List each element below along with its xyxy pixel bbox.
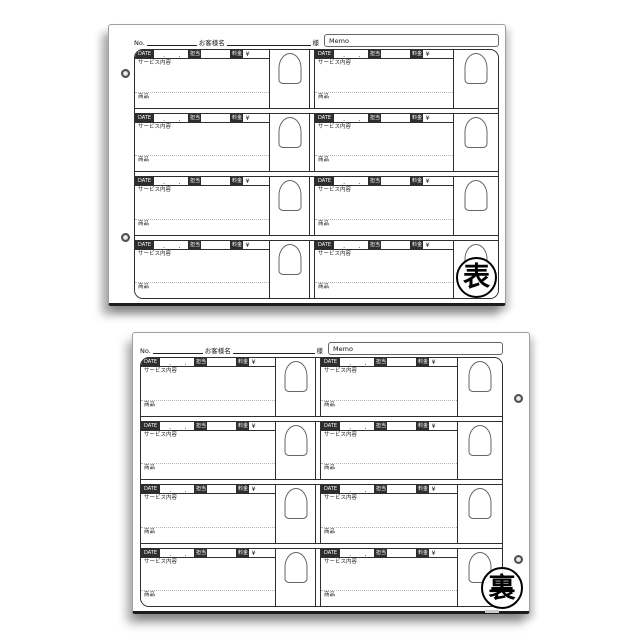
product-label: 商品 — [141, 401, 275, 409]
product-label: 商品 — [315, 220, 453, 228]
record-row: DATE . . 担当 料金 ¥ サービス内容 商品 DATE . . 担当 — [135, 50, 498, 109]
nail-shape-outline — [284, 552, 307, 583]
record-block: DATE . . 担当 料金 ¥ サービス内容 商品 — [141, 422, 276, 480]
memo-box: Memo — [328, 342, 503, 355]
product-area: 商品 — [321, 464, 457, 479]
date-separator-dot: . — [349, 551, 351, 557]
record-block: DATE . . 担当 料金 ¥ サービス内容 商品 — [314, 50, 454, 108]
service-content-area: サービス内容 — [141, 431, 275, 465]
front-side-stamp: 表 — [456, 257, 497, 298]
date-label: DATE — [141, 549, 160, 557]
nail-shape-outline — [278, 180, 301, 211]
date-separator-dot: . — [358, 116, 360, 122]
customer-name-line — [227, 45, 311, 46]
record-block: DATE . . 担当 料金 ¥ サービス内容 商品 — [135, 241, 270, 299]
staff-label: 担当 — [368, 114, 381, 122]
date-separator-dot: . — [184, 551, 186, 557]
service-content-area: サービス内容 — [135, 250, 269, 284]
service-content-area: サービス内容 — [321, 494, 457, 528]
date-separator-dot: . — [364, 424, 366, 430]
fee-label: 料金 — [410, 114, 423, 122]
nail-shape-outline — [469, 425, 492, 456]
date-label: DATE — [321, 485, 340, 493]
record-block: DATE . . 担当 料金 ¥ サービス内容 商品 — [135, 50, 270, 108]
nail-photo-cell — [276, 422, 316, 480]
date-label: DATE — [315, 177, 334, 185]
yen-symbol: ¥ — [245, 114, 249, 122]
service-content-label: サービス内容 — [135, 123, 269, 131]
service-content-label: サービス内容 — [141, 558, 275, 566]
product-label: 商品 — [315, 156, 453, 164]
date-separator-dot: . — [358, 52, 360, 58]
staff-label: 担当 — [194, 358, 207, 366]
memo-box: Memo — [324, 34, 499, 47]
memo-label: Memo — [329, 37, 349, 45]
yen-symbol: ¥ — [431, 422, 435, 430]
staff-label: 担当 — [374, 485, 387, 493]
service-content-label: サービス内容 — [315, 250, 453, 258]
service-content-label: サービス内容 — [135, 186, 269, 194]
product-area: 商品 — [141, 464, 275, 479]
product-label: 商品 — [315, 283, 453, 291]
service-content-area: サービス内容 — [141, 494, 275, 528]
fee-label: 料金 — [236, 485, 249, 493]
staff-label: 担当 — [188, 114, 201, 122]
staff-label: 担当 — [368, 50, 381, 58]
date-separator-dot: . — [163, 116, 165, 122]
nail-photo-cell — [270, 50, 310, 108]
record-block-header: DATE . . 担当 料金 ¥ — [135, 114, 269, 123]
product-label: 商品 — [135, 220, 269, 228]
record-block-header: DATE . . 担当 料金 ¥ — [141, 358, 275, 367]
fee-label: 料金 — [230, 114, 243, 122]
date-separator-dot: . — [184, 487, 186, 493]
yen-symbol: ¥ — [251, 358, 255, 366]
record-block-header: DATE . . 担当 料金 ¥ — [321, 358, 457, 367]
date-separator-dot: . — [178, 52, 180, 58]
product-area: 商品 — [315, 283, 453, 298]
record-block: DATE . . 担当 料金 ¥ サービス内容 商品 — [314, 114, 454, 172]
date-separator-dot: . — [184, 360, 186, 366]
yen-symbol: ¥ — [251, 422, 255, 430]
product-label: 商品 — [321, 464, 457, 472]
product-label: 商品 — [321, 528, 457, 536]
form-header: No. お客様名 様 Memo — [140, 339, 503, 355]
staff-label: 担当 — [194, 549, 207, 557]
product-area: 商品 — [135, 93, 269, 108]
yen-symbol: ¥ — [431, 485, 435, 493]
record-block-header: DATE . . 担当 料金 ¥ — [135, 50, 269, 59]
service-content-area: サービス内容 — [321, 558, 457, 592]
fee-label: 料金 — [410, 241, 423, 249]
date-label: DATE — [315, 241, 334, 249]
nail-photo-cell — [458, 422, 502, 480]
record-block-header: DATE . . 担当 料金 ¥ — [315, 241, 453, 250]
record-row: DATE . . 担当 料金 ¥ サービス内容 商品 DATE . . 担当 — [135, 176, 498, 236]
date-separator-dot: . — [343, 243, 345, 249]
fee-label: 料金 — [416, 358, 429, 366]
product-label: 商品 — [141, 464, 275, 472]
date-label: DATE — [315, 114, 334, 122]
yen-symbol: ¥ — [431, 549, 435, 557]
print-code-mark — [485, 610, 499, 613]
fee-label: 料金 — [416, 485, 429, 493]
service-content-label: サービス内容 — [321, 494, 457, 502]
record-block: DATE . . 担当 料金 ¥ サービス内容 商品 — [141, 358, 276, 416]
service-content-label: サービス内容 — [321, 431, 457, 439]
date-label: DATE — [141, 358, 160, 366]
nail-photo-cell — [276, 358, 316, 416]
sheet-back: No. お客様名 様 Memo DATE . . 担当 料金 ¥ サービス内容 — [132, 332, 530, 614]
yen-symbol: ¥ — [251, 549, 255, 557]
date-separator-dot: . — [358, 179, 360, 185]
yen-symbol: ¥ — [431, 358, 435, 366]
nail-photo-cell — [270, 241, 310, 299]
nail-photo-cell — [454, 50, 498, 108]
customer-name-line — [233, 353, 315, 354]
staff-label: 担当 — [194, 485, 207, 493]
date-separator-dot: . — [169, 487, 171, 493]
record-block-header: DATE . . 担当 料金 ¥ — [315, 177, 453, 186]
date-separator-dot: . — [349, 360, 351, 366]
service-content-label: サービス内容 — [315, 123, 453, 131]
nail-shape-outline — [278, 53, 301, 84]
product-photo: No. お客様名 様 Memo DATE . . 担当 料金 ¥ サービス内容 — [0, 0, 640, 640]
service-content-label: サービス内容 — [135, 59, 269, 67]
fee-label: 料金 — [230, 50, 243, 58]
record-block-header: DATE . . 担当 料金 ¥ — [141, 549, 275, 558]
no-field-line — [153, 353, 203, 354]
record-block-header: DATE . . 担当 料金 ¥ — [135, 241, 269, 250]
date-separator-dot: . — [364, 487, 366, 493]
record-row: DATE . . 担当 料金 ¥ サービス内容 商品 DATE . . 担当 — [141, 421, 502, 481]
record-block-header: DATE . . 担当 料金 ¥ — [321, 549, 457, 558]
product-area: 商品 — [321, 401, 457, 416]
date-separator-dot: . — [343, 179, 345, 185]
date-separator-dot: . — [178, 179, 180, 185]
product-area: 商品 — [321, 591, 457, 606]
product-label: 商品 — [141, 591, 275, 599]
record-block: DATE . . 担当 料金 ¥ サービス内容 商品 — [141, 485, 276, 543]
date-separator-dot: . — [364, 551, 366, 557]
staff-label: 担当 — [188, 50, 201, 58]
fee-label: 料金 — [230, 241, 243, 249]
memo-label: Memo — [333, 345, 353, 353]
honorific-label: 様 — [317, 347, 324, 355]
date-label: DATE — [135, 50, 154, 58]
nail-photo-cell — [458, 485, 502, 543]
record-row: DATE . . 担当 料金 ¥ サービス内容 商品 DATE . . 担当 — [141, 548, 502, 607]
front-stamp-kanji: 表 — [463, 264, 490, 291]
service-content-area: サービス内容 — [315, 123, 453, 157]
punch-hole — [121, 69, 130, 78]
service-content-label: サービス内容 — [321, 367, 457, 375]
record-block-header: DATE . . 担当 料金 ¥ — [135, 177, 269, 186]
record-row: DATE . . 担当 料金 ¥ サービス内容 商品 DATE . . 担当 — [141, 358, 502, 417]
service-content-label: サービス内容 — [315, 186, 453, 194]
record-block-header: DATE . . 担当 料金 ¥ — [141, 485, 275, 494]
record-block-header: DATE . . 担当 料金 ¥ — [321, 485, 457, 494]
date-separator-dot: . — [169, 360, 171, 366]
nail-shape-outline — [284, 361, 307, 392]
nail-photo-cell — [270, 114, 310, 172]
fee-label: 料金 — [230, 177, 243, 185]
record-block-header: DATE . . 担当 料金 ¥ — [315, 50, 453, 59]
record-block-header: DATE . . 担当 料金 ¥ — [141, 422, 275, 431]
product-area: 商品 — [141, 528, 275, 543]
fee-label: 料金 — [236, 422, 249, 430]
service-content-label: サービス内容 — [141, 431, 275, 439]
date-label: DATE — [141, 422, 160, 430]
record-row: DATE . . 担当 料金 ¥ サービス内容 商品 DATE . . 担当 — [141, 484, 502, 544]
record-block: DATE . . 担当 料金 ¥ サービス内容 商品 — [320, 358, 458, 416]
date-label: DATE — [135, 241, 154, 249]
date-separator-dot: . — [343, 116, 345, 122]
product-label: 商品 — [315, 93, 453, 101]
honorific-label: 様 — [313, 39, 320, 47]
product-label: 商品 — [135, 283, 269, 291]
staff-label: 担当 — [194, 422, 207, 430]
yen-symbol: ¥ — [425, 241, 429, 249]
product-area: 商品 — [315, 220, 453, 235]
staff-label: 担当 — [188, 177, 201, 185]
product-area: 商品 — [141, 591, 275, 606]
record-block: DATE . . 担当 料金 ¥ サービス内容 商品 — [141, 549, 276, 607]
service-content-area: サービス内容 — [321, 431, 457, 465]
record-row: DATE . . 担当 料金 ¥ サービス内容 商品 DATE . . 担当 — [135, 240, 498, 299]
product-label: 商品 — [135, 93, 269, 101]
record-block: DATE . . 担当 料金 ¥ サービス内容 商品 — [320, 422, 458, 480]
fee-label: 料金 — [236, 549, 249, 557]
record-block-header: DATE . . 担当 料金 ¥ — [321, 422, 457, 431]
sheet-front: No. お客様名 様 Memo DATE . . 担当 料金 ¥ サービス内容 — [108, 24, 506, 306]
back-side-stamp: 裏 — [481, 567, 523, 609]
date-label: DATE — [135, 114, 154, 122]
service-content-area: サービス内容 — [141, 558, 275, 592]
nail-shape-outline — [465, 180, 488, 211]
date-separator-dot: . — [364, 360, 366, 366]
product-label: 商品 — [321, 591, 457, 599]
date-separator-dot: . — [163, 179, 165, 185]
date-label: DATE — [315, 50, 334, 58]
record-block: DATE . . 担当 料金 ¥ サービス内容 商品 — [135, 114, 270, 172]
date-separator-dot: . — [184, 424, 186, 430]
product-area: 商品 — [135, 283, 269, 298]
fee-label: 料金 — [410, 50, 423, 58]
nail-photo-cell — [276, 549, 316, 607]
customer-name-label: お客様名 — [199, 39, 225, 47]
date-label: DATE — [321, 422, 340, 430]
service-content-label: サービス内容 — [141, 367, 275, 375]
punch-hole — [514, 394, 523, 403]
no-label: No. — [134, 39, 145, 47]
staff-label: 担当 — [374, 549, 387, 557]
date-separator-dot: . — [178, 116, 180, 122]
date-separator-dot: . — [178, 243, 180, 249]
product-area: 商品 — [135, 220, 269, 235]
date-separator-dot: . — [343, 52, 345, 58]
record-grid: DATE . . 担当 料金 ¥ サービス内容 商品 DATE . . 担当 — [134, 49, 499, 299]
staff-label: 担当 — [374, 358, 387, 366]
yen-symbol: ¥ — [425, 50, 429, 58]
record-block: DATE . . 担当 料金 ¥ サービス内容 商品 — [320, 485, 458, 543]
nail-shape-outline — [278, 244, 301, 275]
record-block: DATE . . 担当 料金 ¥ サービス内容 商品 — [320, 549, 458, 607]
date-separator-dot: . — [169, 551, 171, 557]
staff-label: 担当 — [368, 241, 381, 249]
nail-photo-cell — [276, 485, 316, 543]
product-area: 商品 — [321, 528, 457, 543]
nail-photo-cell — [454, 114, 498, 172]
product-label: 商品 — [321, 401, 457, 409]
record-block: DATE . . 担当 料金 ¥ サービス内容 商品 — [314, 241, 454, 299]
yen-symbol: ¥ — [245, 50, 249, 58]
nail-shape-outline — [469, 488, 492, 519]
fee-label: 料金 — [416, 549, 429, 557]
product-label: 商品 — [141, 528, 275, 536]
date-label: DATE — [321, 358, 340, 366]
no-field-line — [147, 45, 197, 46]
sheet-back-content: No. お客様名 様 Memo DATE . . 担当 料金 ¥ サービス内容 — [140, 339, 503, 607]
service-content-area: サービス内容 — [135, 123, 269, 157]
staff-label: 担当 — [188, 241, 201, 249]
service-content-area: サービス内容 — [135, 186, 269, 220]
product-label: 商品 — [135, 156, 269, 164]
service-content-area: サービス内容 — [135, 59, 269, 93]
date-separator-dot: . — [163, 243, 165, 249]
date-separator-dot: . — [169, 424, 171, 430]
service-content-label: サービス内容 — [321, 558, 457, 566]
nail-shape-outline — [469, 361, 492, 392]
staff-label: 担当 — [374, 422, 387, 430]
back-stamp-kanji: 裏 — [489, 575, 516, 602]
nail-shape-outline — [465, 117, 488, 148]
no-label: No. — [140, 347, 151, 355]
service-content-area: サービス内容 — [141, 367, 275, 401]
product-area: 商品 — [315, 156, 453, 171]
sheet-front-content: No. お客様名 様 Memo DATE . . 担当 料金 ¥ サービス内容 — [134, 31, 499, 299]
product-area: 商品 — [135, 156, 269, 171]
service-content-area: サービス内容 — [315, 59, 453, 93]
date-label: DATE — [135, 177, 154, 185]
nail-shape-outline — [284, 488, 307, 519]
product-area: 商品 — [315, 93, 453, 108]
fee-label: 料金 — [416, 422, 429, 430]
nail-shape-outline — [278, 117, 301, 148]
yen-symbol: ¥ — [245, 177, 249, 185]
product-area: 商品 — [141, 401, 275, 416]
date-separator-dot: . — [349, 424, 351, 430]
customer-name-label: お客様名 — [205, 347, 231, 355]
service-content-area: サービス内容 — [315, 250, 453, 284]
date-separator-dot: . — [358, 243, 360, 249]
service-content-label: サービス内容 — [315, 59, 453, 67]
date-separator-dot: . — [163, 52, 165, 58]
service-content-label: サービス内容 — [135, 250, 269, 258]
nail-shape-outline — [284, 425, 307, 456]
record-grid: DATE . . 担当 料金 ¥ サービス内容 商品 DATE . . 担当 — [140, 357, 503, 607]
nail-photo-cell — [458, 358, 502, 416]
service-content-area: サービス内容 — [315, 186, 453, 220]
nail-photo-cell — [454, 177, 498, 235]
punch-hole — [514, 555, 523, 564]
service-content-area: サービス内容 — [321, 367, 457, 401]
nail-photo-cell — [270, 177, 310, 235]
yen-symbol: ¥ — [245, 241, 249, 249]
fee-label: 料金 — [410, 177, 423, 185]
record-block: DATE . . 担当 料金 ¥ サービス内容 商品 — [314, 177, 454, 235]
nail-shape-outline — [465, 53, 488, 84]
record-block: DATE . . 担当 料金 ¥ サービス内容 商品 — [135, 177, 270, 235]
date-label: DATE — [321, 549, 340, 557]
record-block-header: DATE . . 担当 料金 ¥ — [315, 114, 453, 123]
fee-label: 料金 — [236, 358, 249, 366]
yen-symbol: ¥ — [425, 114, 429, 122]
punch-hole — [121, 233, 130, 242]
service-content-label: サービス内容 — [141, 494, 275, 502]
date-separator-dot: . — [349, 487, 351, 493]
yen-symbol: ¥ — [251, 485, 255, 493]
record-row: DATE . . 担当 料金 ¥ サービス内容 商品 DATE . . 担当 — [135, 113, 498, 173]
yen-symbol: ¥ — [425, 177, 429, 185]
date-label: DATE — [141, 485, 160, 493]
staff-label: 担当 — [368, 177, 381, 185]
form-header: No. お客様名 様 Memo — [134, 31, 499, 47]
